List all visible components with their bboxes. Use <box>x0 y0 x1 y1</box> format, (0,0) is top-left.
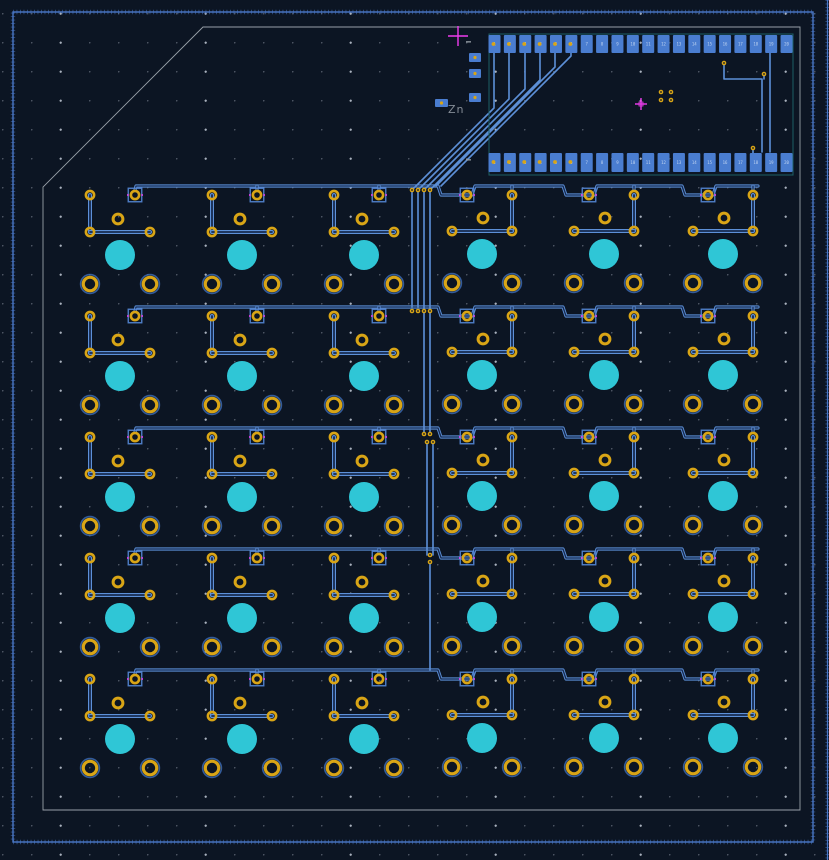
diode-pad[interactable] <box>235 456 245 466</box>
smd-pad[interactable]: 11 <box>642 153 654 172</box>
diode-pad[interactable] <box>719 334 729 344</box>
smd-pad[interactable]: 13 <box>673 153 685 172</box>
mounting-hole[interactable] <box>141 275 160 294</box>
via[interactable] <box>410 188 415 193</box>
via-in-pad <box>553 42 557 46</box>
mounting-hole[interactable] <box>625 274 644 293</box>
module-via[interactable] <box>669 98 674 103</box>
mounting-hole[interactable] <box>81 638 100 657</box>
pad-number: 13 <box>677 42 682 47</box>
diode-pad[interactable] <box>113 214 123 224</box>
mounting-hole[interactable] <box>684 516 703 535</box>
npth-hole[interactable] <box>708 602 738 632</box>
smd-pad[interactable]: 9 <box>611 153 623 172</box>
pcb-drawing[interactable]: 1122334455667788991010111112121313141415… <box>0 0 829 860</box>
mounting-hole[interactable] <box>385 638 404 657</box>
npth-hole[interactable] <box>105 240 135 270</box>
npth-hole[interactable] <box>467 481 497 511</box>
row-bus-trace-4[interactable] <box>135 549 758 558</box>
smd-pad[interactable]: 7 <box>581 153 593 172</box>
mounting-hole[interactable] <box>625 516 644 535</box>
pad-number: 17 <box>738 42 743 47</box>
smd-pad[interactable]: 18 <box>750 35 762 53</box>
pad-number: 17 <box>738 160 743 165</box>
npth-hole[interactable] <box>105 482 135 512</box>
via[interactable] <box>428 309 433 314</box>
npth-hole[interactable] <box>227 361 257 391</box>
mounting-hole[interactable] <box>325 638 344 657</box>
diode-pad[interactable] <box>235 577 245 587</box>
diode-pad[interactable] <box>357 335 367 345</box>
mounting-hole[interactable] <box>443 395 462 414</box>
switch-pin-pad[interactable] <box>253 433 261 441</box>
module-via[interactable] <box>659 90 664 95</box>
silk-dash <box>466 41 471 43</box>
smd-pad[interactable]: 14 <box>688 35 700 53</box>
mounting-hole[interactable] <box>141 638 160 657</box>
key-switch-r1c6[interactable] <box>684 188 763 292</box>
diode-pad[interactable] <box>235 214 245 224</box>
key-switch-r4c3[interactable] <box>325 551 404 656</box>
key-switch-r2c1[interactable] <box>81 309 160 414</box>
mounting-hole[interactable] <box>385 275 404 294</box>
smd-pad[interactable]: 12 <box>658 153 670 172</box>
switch-pin-pad[interactable] <box>375 191 383 199</box>
npth-hole[interactable] <box>467 723 497 753</box>
diode-pad[interactable] <box>478 455 488 465</box>
diode-pad[interactable] <box>113 698 123 708</box>
diode-pad[interactable] <box>600 334 610 344</box>
npth-hole[interactable] <box>227 603 257 633</box>
switch-pin-pad[interactable] <box>375 675 383 683</box>
smd-pad-small[interactable] <box>469 53 481 62</box>
switch-pin-pad[interactable] <box>131 312 139 320</box>
row-bus-trace-5[interactable] <box>135 670 758 679</box>
mounting-hole[interactable] <box>744 274 763 293</box>
via[interactable] <box>431 440 436 445</box>
via-in-pad <box>492 42 496 46</box>
npth-hole[interactable] <box>349 361 379 391</box>
mounting-hole[interactable] <box>443 274 462 293</box>
key-switch-r4c5[interactable] <box>565 551 644 655</box>
mounting-hole[interactable] <box>385 759 404 778</box>
smd-pad[interactable]: 3 <box>519 153 531 172</box>
smd-pad[interactable]: 13 <box>673 35 685 53</box>
smd-pad[interactable]: 10 <box>627 153 639 172</box>
pad-number: 15 <box>707 42 712 47</box>
row-bus-trace-3[interactable] <box>135 428 758 437</box>
origin-marker-icon <box>448 26 468 46</box>
mounting-hole[interactable] <box>503 637 522 656</box>
mounting-hole[interactable] <box>684 395 703 414</box>
via-cluster[interactable] <box>410 188 436 565</box>
diode-pad[interactable] <box>478 334 488 344</box>
smd-pad[interactable]: 5 <box>550 35 562 53</box>
pad-number: 10 <box>630 42 635 47</box>
smd-pad[interactable]: 15 <box>704 35 716 53</box>
mounting-hole[interactable] <box>141 759 160 778</box>
npth-hole[interactable] <box>349 603 379 633</box>
smd-pad[interactable]: 7 <box>581 35 593 53</box>
via-in-pad <box>492 160 496 164</box>
switch-pin-pad[interactable] <box>131 675 139 683</box>
pad-number: 11 <box>646 160 651 165</box>
pad-number: 18 <box>753 42 758 47</box>
mounting-hole[interactable] <box>744 637 763 656</box>
key-switch-r3c4[interactable] <box>443 430 522 534</box>
smd-pad[interactable]: 17 <box>734 153 746 172</box>
npth-hole[interactable] <box>349 482 379 512</box>
mounting-hole[interactable] <box>744 758 763 777</box>
diode-pad[interactable] <box>478 576 488 586</box>
smd-pad[interactable]: 9 <box>611 35 623 53</box>
pad-number: 20 <box>784 160 789 165</box>
smd-pad[interactable]: 19 <box>765 35 777 53</box>
via[interactable] <box>428 432 433 437</box>
via[interactable] <box>422 309 427 314</box>
smd-pad[interactable]: 11 <box>642 35 654 53</box>
smd-pad-small[interactable] <box>435 99 448 107</box>
smd-pad[interactable]: 1 <box>489 153 501 172</box>
mounting-hole[interactable] <box>81 396 100 415</box>
via-in-pad <box>522 160 526 164</box>
pad-number: 10 <box>630 160 635 165</box>
smd-pad[interactable]: 20 <box>781 153 793 172</box>
key-switch-r3c2[interactable] <box>203 430 282 535</box>
mounting-hole[interactable] <box>385 396 404 415</box>
smd-pad[interactable]: 2 <box>504 153 516 172</box>
key-switch-r5c4[interactable] <box>443 672 522 776</box>
mounting-hole[interactable] <box>565 637 584 656</box>
mounting-hole[interactable] <box>443 516 462 535</box>
via-in-pad <box>553 160 557 164</box>
diode-pad[interactable] <box>600 455 610 465</box>
npth-hole[interactable] <box>589 723 619 753</box>
mounting-hole[interactable] <box>443 637 462 656</box>
switch-pin-pad[interactable] <box>253 554 261 562</box>
smd-pad[interactable]: 6 <box>565 35 577 53</box>
smd-pad[interactable]: 20 <box>781 35 793 53</box>
diode-pad[interactable] <box>719 213 729 223</box>
diode-pad[interactable] <box>357 698 367 708</box>
mounting-hole[interactable] <box>203 517 222 536</box>
switch-pin-pad[interactable] <box>131 191 139 199</box>
via[interactable] <box>410 309 415 314</box>
key-switch-r5c5[interactable] <box>565 672 644 776</box>
mounting-hole[interactable] <box>565 274 584 293</box>
mounting-hole[interactable] <box>625 395 644 414</box>
switch-pin-pad[interactable] <box>375 554 383 562</box>
mounting-hole[interactable] <box>684 758 703 777</box>
diode-pad[interactable] <box>357 577 367 587</box>
module-via[interactable] <box>762 72 767 77</box>
smd-pad[interactable]: 10 <box>627 35 639 53</box>
diode-pad[interactable] <box>478 213 488 223</box>
via[interactable] <box>416 309 421 314</box>
npth-hole[interactable] <box>467 239 497 269</box>
key-switch-r2c2[interactable] <box>203 309 282 414</box>
pad-number: 18 <box>753 160 758 165</box>
smd-pad-small[interactable] <box>469 69 481 78</box>
npth-hole[interactable] <box>227 482 257 512</box>
mounting-hole[interactable] <box>385 517 404 536</box>
smd-pad[interactable]: 8 <box>596 153 608 172</box>
smd-pad[interactable]: 12 <box>658 35 670 53</box>
diode-pad[interactable] <box>113 577 123 587</box>
module-trace[interactable] <box>724 63 762 152</box>
pad-number: 16 <box>723 160 728 165</box>
switch-pin-pad[interactable] <box>375 433 383 441</box>
mounting-hole[interactable] <box>565 758 584 777</box>
key-switch-r5c6[interactable] <box>684 672 763 776</box>
npth-hole[interactable] <box>467 602 497 632</box>
npth-hole[interactable] <box>467 360 497 390</box>
mounting-hole[interactable] <box>263 517 282 536</box>
pad-number: 16 <box>723 42 728 47</box>
key-switch-r1c3[interactable] <box>325 188 404 293</box>
npth-hole[interactable] <box>227 724 257 754</box>
pad-number: 12 <box>661 160 666 165</box>
diode-pad[interactable] <box>600 213 610 223</box>
mounting-hole[interactable] <box>503 516 522 535</box>
pcb-canvas[interactable]: 1122334455667788991010111112121313141415… <box>0 0 829 860</box>
key-switch-r3c3[interactable] <box>325 430 404 535</box>
pad-number: 11 <box>646 42 651 47</box>
via[interactable] <box>428 560 433 565</box>
via-in-pad <box>538 160 542 164</box>
npth-hole[interactable] <box>105 603 135 633</box>
mounting-hole[interactable] <box>565 516 584 535</box>
mounting-hole[interactable] <box>141 396 160 415</box>
mounting-hole[interactable] <box>263 759 282 778</box>
smd-pad[interactable]: 16 <box>719 153 731 172</box>
mounting-hole[interactable] <box>203 396 222 415</box>
smd-pad[interactable]: 8 <box>596 35 608 53</box>
key-switch-r3c1[interactable] <box>81 430 160 535</box>
key-switch-r5c3[interactable] <box>325 672 404 777</box>
module-via[interactable] <box>669 90 674 95</box>
mounting-hole[interactable] <box>684 274 703 293</box>
key-switch-r2c4[interactable] <box>443 309 522 413</box>
mounting-hole[interactable] <box>81 759 100 778</box>
key-switch-r4c1[interactable] <box>81 551 160 656</box>
via[interactable] <box>428 188 433 193</box>
via-in-pad <box>522 42 526 46</box>
smd-pad[interactable]: 17 <box>734 35 746 53</box>
npth-hole[interactable] <box>589 360 619 390</box>
key-switch-r1c2[interactable] <box>203 188 282 293</box>
pad-number: 13 <box>677 160 682 165</box>
key-switch-r1c4[interactable] <box>443 188 522 292</box>
key-switch-r4c4[interactable] <box>443 551 522 655</box>
mounting-hole[interactable] <box>625 758 644 777</box>
row-bus-trace-2[interactable] <box>135 307 758 316</box>
mounting-hole[interactable] <box>325 759 344 778</box>
mounting-hole[interactable] <box>503 758 522 777</box>
diode-pad[interactable] <box>113 456 123 466</box>
smd-pad[interactable]: 15 <box>704 153 716 172</box>
switch-pin-pad[interactable] <box>131 554 139 562</box>
diode-pad[interactable] <box>357 214 367 224</box>
mounting-hole[interactable] <box>503 274 522 293</box>
npth-hole[interactable] <box>589 481 619 511</box>
mounting-hole[interactable] <box>263 638 282 657</box>
mounting-hole[interactable] <box>684 637 703 656</box>
npth-hole[interactable] <box>227 240 257 270</box>
via-in-pad <box>507 42 511 46</box>
smd-pad[interactable]: 4 <box>535 153 547 172</box>
via-in-pad <box>507 160 511 164</box>
key-switch-r1c1[interactable] <box>81 188 160 293</box>
smd-pad[interactable]: 6 <box>565 153 577 172</box>
traces-layer[interactable] <box>135 53 770 679</box>
pad-number: 19 <box>769 42 774 47</box>
via[interactable] <box>422 188 427 193</box>
npth-hole[interactable] <box>708 481 738 511</box>
row-bus-trace-1[interactable] <box>135 186 758 195</box>
mounting-hole[interactable] <box>744 395 763 414</box>
mounting-hole[interactable] <box>325 517 344 536</box>
via[interactable] <box>416 188 421 193</box>
mounting-hole[interactable] <box>503 395 522 414</box>
key-switch-r4c6[interactable] <box>684 551 763 655</box>
smd-pad[interactable]: 1 <box>489 35 501 53</box>
mounting-hole[interactable] <box>203 759 222 778</box>
pad-number: 12 <box>661 42 666 47</box>
mounting-hole[interactable] <box>565 395 584 414</box>
silk-dash <box>466 159 471 161</box>
mcu-module-footprint[interactable]: 1122334455667788991010111112121313141415… <box>435 34 793 175</box>
key-switch-r2c6[interactable] <box>684 309 763 413</box>
switch-pin-pad[interactable] <box>253 675 261 683</box>
key-switch-r2c3[interactable] <box>325 309 404 414</box>
mounting-hole[interactable] <box>203 275 222 294</box>
pad-number: 15 <box>707 160 712 165</box>
via[interactable] <box>428 553 433 558</box>
diode-pad[interactable] <box>235 698 245 708</box>
key-switch-r4c2[interactable] <box>203 551 282 656</box>
pad-number: 19 <box>769 160 774 165</box>
smd-pad[interactable]: 14 <box>688 153 700 172</box>
mounting-hole[interactable] <box>443 758 462 777</box>
key-matrix[interactable] <box>81 188 763 777</box>
module-via[interactable] <box>751 146 756 151</box>
smd-pad[interactable]: 19 <box>765 153 777 172</box>
npth-hole[interactable] <box>349 240 379 270</box>
smd-pad[interactable]: 5 <box>550 153 562 172</box>
diode-pad[interactable] <box>719 576 729 586</box>
switch-pin-pad[interactable] <box>253 191 261 199</box>
reference-designator[interactable]: Zn <box>448 103 465 116</box>
mounting-hole[interactable] <box>325 275 344 294</box>
diode-pad[interactable] <box>478 697 488 707</box>
board-edge-outline[interactable] <box>43 27 800 810</box>
npth-hole[interactable] <box>589 239 619 269</box>
npth-hole[interactable] <box>589 602 619 632</box>
pad-number: 14 <box>692 42 697 47</box>
via-in-pad <box>568 160 572 164</box>
smd-pad[interactable]: 3 <box>519 35 531 53</box>
mounting-hole[interactable] <box>81 517 100 536</box>
mounting-hole[interactable] <box>203 638 222 657</box>
switch-pin-pad[interactable] <box>253 312 261 320</box>
key-switch-r5c1[interactable] <box>81 672 160 777</box>
key-switch-r5c2[interactable] <box>203 672 282 777</box>
key-switch-r1c5[interactable] <box>565 188 644 292</box>
mounting-hole[interactable] <box>744 516 763 535</box>
via-in-pad <box>538 42 542 46</box>
diode-pad[interactable] <box>235 335 245 345</box>
key-switch-r3c5[interactable] <box>565 430 644 534</box>
smd-pad[interactable]: 16 <box>719 35 731 53</box>
mounting-hole[interactable] <box>325 396 344 415</box>
diode-pad[interactable] <box>600 697 610 707</box>
switch-pin-pad[interactable] <box>375 312 383 320</box>
mounting-hole[interactable] <box>141 517 160 536</box>
npth-hole[interactable] <box>105 724 135 754</box>
pad-number: 20 <box>784 42 789 47</box>
key-switch-r3c6[interactable] <box>684 430 763 534</box>
diode-pad[interactable] <box>719 697 729 707</box>
diode-pad[interactable] <box>113 335 123 345</box>
via[interactable] <box>422 432 427 437</box>
via-in-pad <box>568 42 572 46</box>
npth-hole[interactable] <box>349 724 379 754</box>
smd-pad[interactable]: 4 <box>535 35 547 53</box>
mounting-hole[interactable] <box>263 275 282 294</box>
smd-pad[interactable]: 2 <box>504 35 516 53</box>
npth-hole[interactable] <box>708 723 738 753</box>
pad-number: 14 <box>692 160 697 165</box>
switch-pin-pad[interactable] <box>131 433 139 441</box>
module-via[interactable] <box>722 61 727 66</box>
smd-pad-small[interactable] <box>469 93 481 102</box>
footprint-anchor-icon <box>635 98 647 110</box>
key-switch-r2c5[interactable] <box>565 309 644 413</box>
npth-hole[interactable] <box>708 239 738 269</box>
via[interactable] <box>425 440 430 445</box>
mounting-hole[interactable] <box>263 396 282 415</box>
diode-pad[interactable] <box>600 576 610 586</box>
mounting-hole[interactable] <box>81 275 100 294</box>
diode-pad[interactable] <box>719 455 729 465</box>
mounting-hole[interactable] <box>625 637 644 656</box>
module-via[interactable] <box>659 98 664 103</box>
smd-pad[interactable]: 18 <box>750 153 762 172</box>
npth-hole[interactable] <box>708 360 738 390</box>
npth-hole[interactable] <box>105 361 135 391</box>
diode-pad[interactable] <box>357 456 367 466</box>
